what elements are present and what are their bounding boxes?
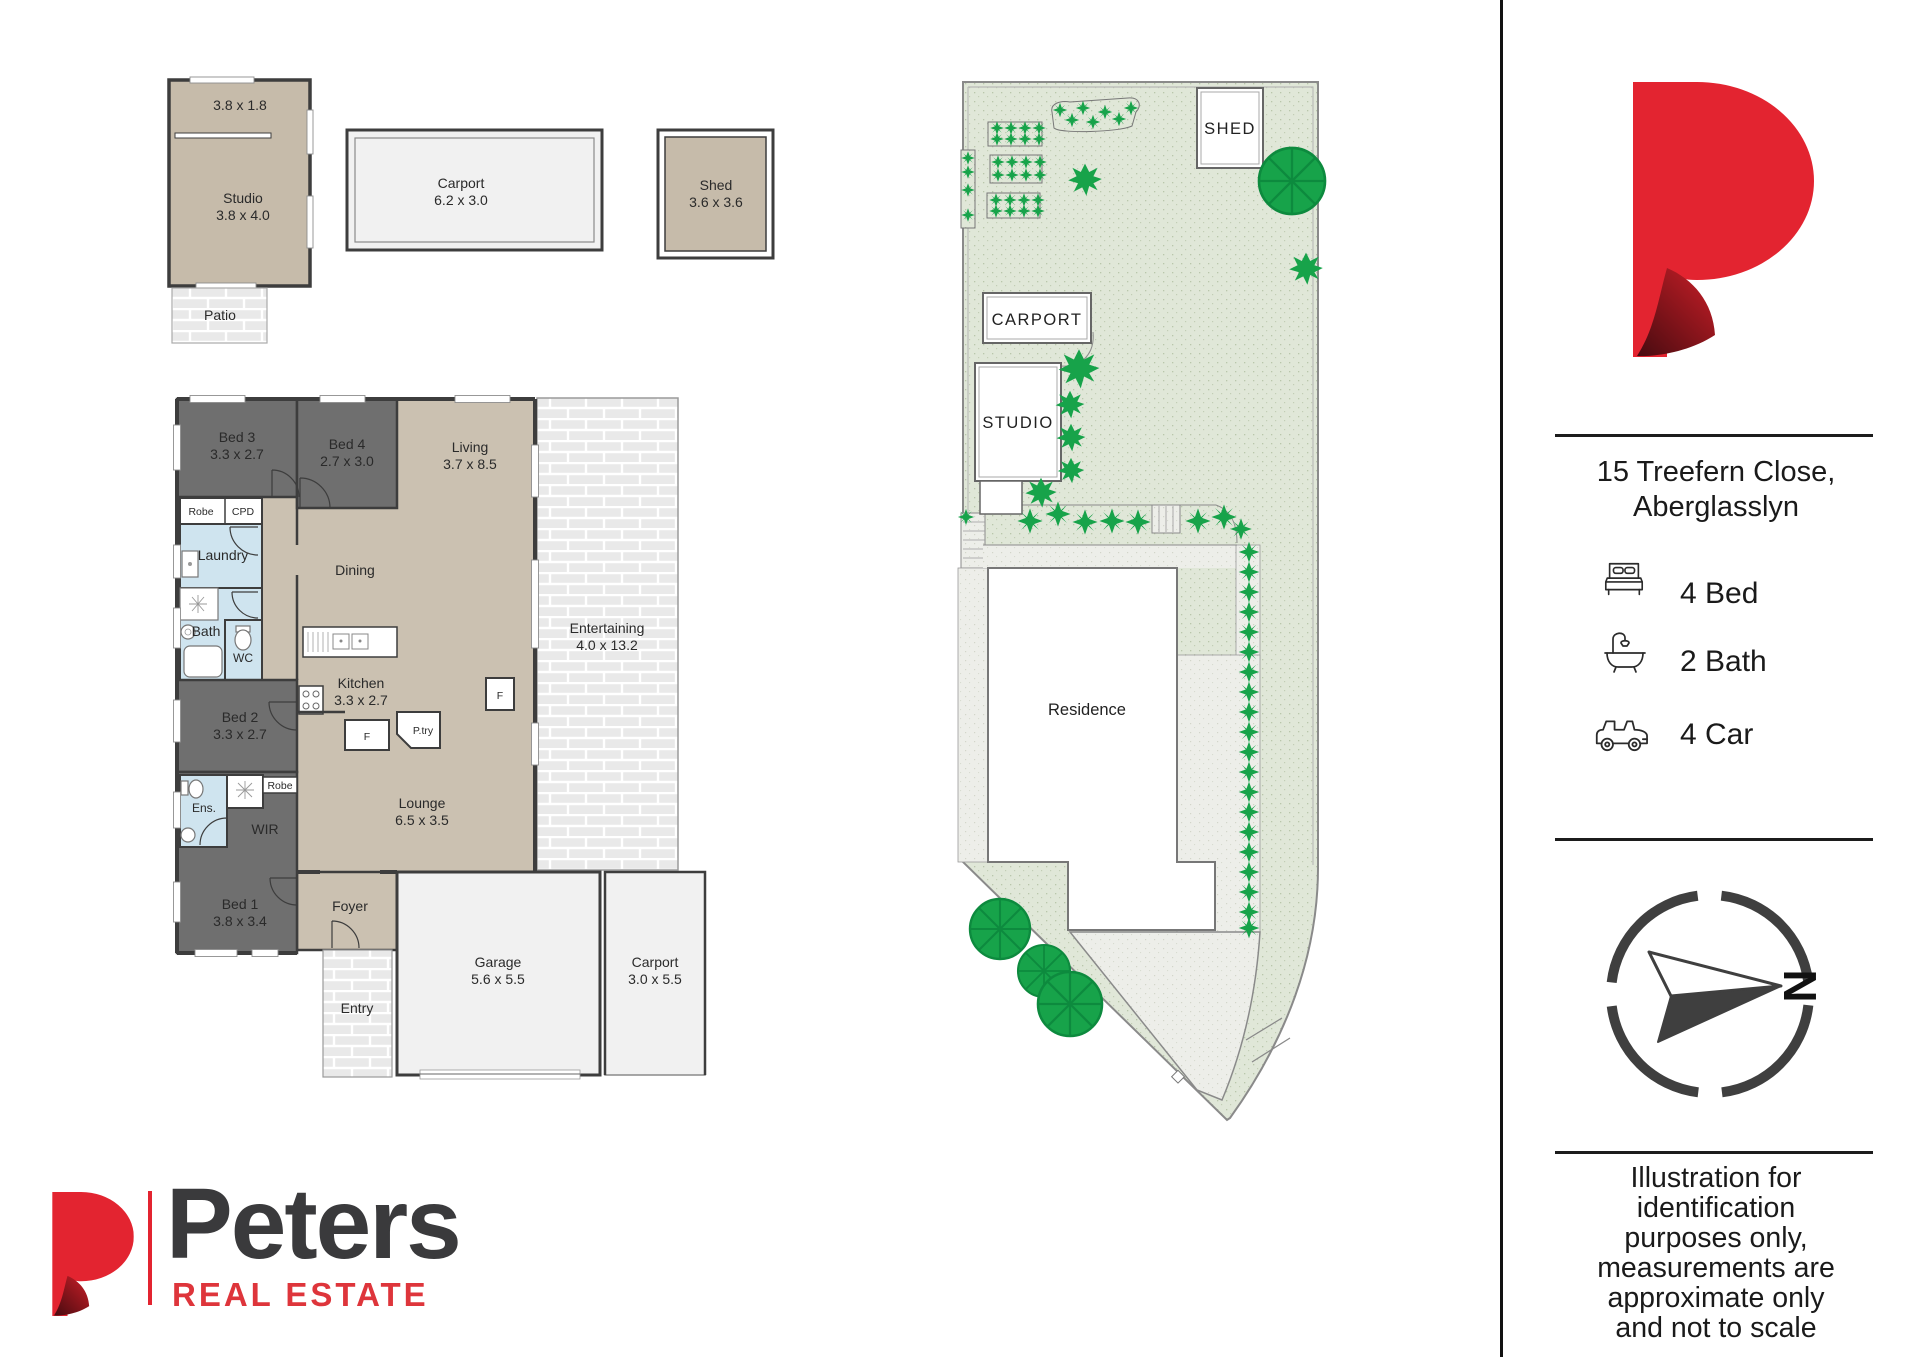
disclaimer-line: and not to scale xyxy=(1540,1313,1892,1343)
shed-dim: 3.6 x 3.6 xyxy=(689,194,743,210)
carport-label: Carport xyxy=(632,954,679,970)
kitchen-label: Kitchen xyxy=(338,675,385,691)
pantry-label: P.try xyxy=(413,725,434,737)
bath-count: 2 Bath xyxy=(1680,645,1767,679)
brand-p-logo xyxy=(1632,82,1815,357)
residence-label: Residence xyxy=(1048,701,1126,719)
bed4-label: Bed 4 xyxy=(329,436,366,452)
room-laundry: Laundry xyxy=(180,524,262,588)
brand-divider-bar xyxy=(148,1191,152,1305)
robe-cpd-strip: Robe CPD xyxy=(180,498,262,524)
entry-porch: Entry xyxy=(323,950,392,1077)
panel-rule-1 xyxy=(1555,434,1873,437)
studio-label: Studio xyxy=(223,190,263,206)
bed3-dim: 3.3 x 2.7 xyxy=(210,446,264,462)
attached-carport: Carport 3.0 x 5.5 xyxy=(605,872,705,1075)
foyer-label: Foyer xyxy=(332,898,368,914)
bath-icon xyxy=(1600,626,1650,676)
disclaimer-line: purposes only, xyxy=(1540,1223,1892,1253)
bed-icon xyxy=(1601,560,1647,602)
living-label: Living xyxy=(452,439,489,455)
compass-north-label: N xyxy=(1774,969,1826,1002)
room-bed2: Bed 2 3.3 x 2.7 xyxy=(177,680,297,772)
entertaining-area: Entertaining 4.0 x 13.2 xyxy=(537,398,678,870)
disclaimer-line: approximate only xyxy=(1540,1283,1892,1313)
dining-label: Dining xyxy=(335,562,375,578)
site-plan: Residence SHED CARPORT STUDIO xyxy=(940,40,1360,1150)
brand-tagline: REAL ESTATE xyxy=(172,1276,429,1314)
bed3-label: Bed 3 xyxy=(219,429,256,445)
bed1-wing: Ens. Robe WIR Bed 1 3.8 x 3.4 xyxy=(177,772,297,953)
disclaimer-line: Illustration for xyxy=(1540,1163,1892,1193)
site-shed-label: SHED xyxy=(1204,120,1256,138)
room-wc: WC xyxy=(225,620,262,680)
address-line1: 15 Treefern Close, xyxy=(1540,455,1892,490)
property-address: 15 Treefern Close, Aberglasslyn xyxy=(1540,455,1892,525)
carport-dim: 3.0 x 5.5 xyxy=(628,971,682,987)
address-line2: Aberglasslyn xyxy=(1540,490,1892,525)
living-dim: 3.7 x 8.5 xyxy=(443,456,497,472)
site-studio-label: STUDIO xyxy=(982,414,1053,432)
kitchen-dim: 3.3 x 2.7 xyxy=(334,692,388,708)
car-icon xyxy=(1592,713,1656,757)
bed4-dim: 2.7 x 3.0 xyxy=(320,453,374,469)
cpd-label: CPD xyxy=(232,506,255,518)
lounge-label: Lounge xyxy=(399,795,446,811)
robe-label: Robe xyxy=(188,506,213,518)
bed1-dim: 3.8 x 3.4 xyxy=(213,913,267,929)
compass: N xyxy=(1592,876,1828,1112)
site-carport-label: CARPORT xyxy=(992,311,1083,329)
detached-carport-label: Carport xyxy=(438,175,485,191)
garage-dim: 5.6 x 5.5 xyxy=(471,971,525,987)
brand-p-logo-small xyxy=(52,1192,134,1316)
car-count: 4 Car xyxy=(1680,718,1753,752)
floorplan-page: 3.8 x 1.8 Studio 3.8 x 4.0 Patio Carport… xyxy=(0,0,1920,1357)
brand-name: Peters xyxy=(166,1174,460,1274)
detached-carport-dim: 6.2 x 3.0 xyxy=(434,192,488,208)
bed2-label: Bed 2 xyxy=(222,709,259,725)
room-bed4: Bed 4 2.7 x 3.0 xyxy=(297,399,397,508)
bed1-label: Bed 1 xyxy=(222,896,259,912)
bath-label: Bath xyxy=(192,623,221,639)
garage-label: Garage xyxy=(475,954,522,970)
studio-upper-dim: 3.8 x 1.8 xyxy=(213,97,267,113)
ensuite-label: Ens. xyxy=(192,801,216,815)
panel-rule-2 xyxy=(1555,838,1873,841)
entertaining-label: Entertaining xyxy=(570,620,645,636)
fridge2-label: F xyxy=(497,690,503,702)
robe2-label: Robe xyxy=(267,780,292,792)
shed-label: Shed xyxy=(700,177,733,193)
studio-outbuilding: 3.8 x 1.8 Studio 3.8 x 4.0 Patio xyxy=(169,77,313,343)
bed-count: 4 Bed xyxy=(1680,577,1758,611)
patio-label: Patio xyxy=(204,307,236,323)
floor-plan: 3.8 x 1.8 Studio 3.8 x 4.0 Patio Carport… xyxy=(0,0,790,1130)
disclaimer-line: measurements are xyxy=(1540,1253,1892,1283)
detached-carport: Carport 6.2 x 3.0 xyxy=(347,130,602,250)
detached-shed: Shed 3.6 x 3.6 xyxy=(658,130,773,258)
room-bed3: Bed 3 3.3 x 2.7 xyxy=(177,399,297,497)
entry-label: Entry xyxy=(341,1000,374,1016)
panel-rule-3 xyxy=(1555,1151,1873,1154)
bed2-dim: 3.3 x 2.7 xyxy=(213,726,267,742)
lounge-dim: 6.5 x 3.5 xyxy=(395,812,449,828)
garage: Garage 5.6 x 5.5 xyxy=(397,872,600,1079)
disclaimer-line: identification xyxy=(1540,1193,1892,1223)
disclaimer-text: Illustration for identification purposes… xyxy=(1540,1163,1892,1343)
studio-dim: 3.8 x 4.0 xyxy=(216,207,270,223)
panel-divider xyxy=(1500,0,1503,1357)
wir-label: WIR xyxy=(251,821,278,837)
fridge-label: F xyxy=(364,731,370,743)
wc-label: WC xyxy=(233,651,253,665)
entertaining-dim: 4.0 x 13.2 xyxy=(576,637,638,653)
